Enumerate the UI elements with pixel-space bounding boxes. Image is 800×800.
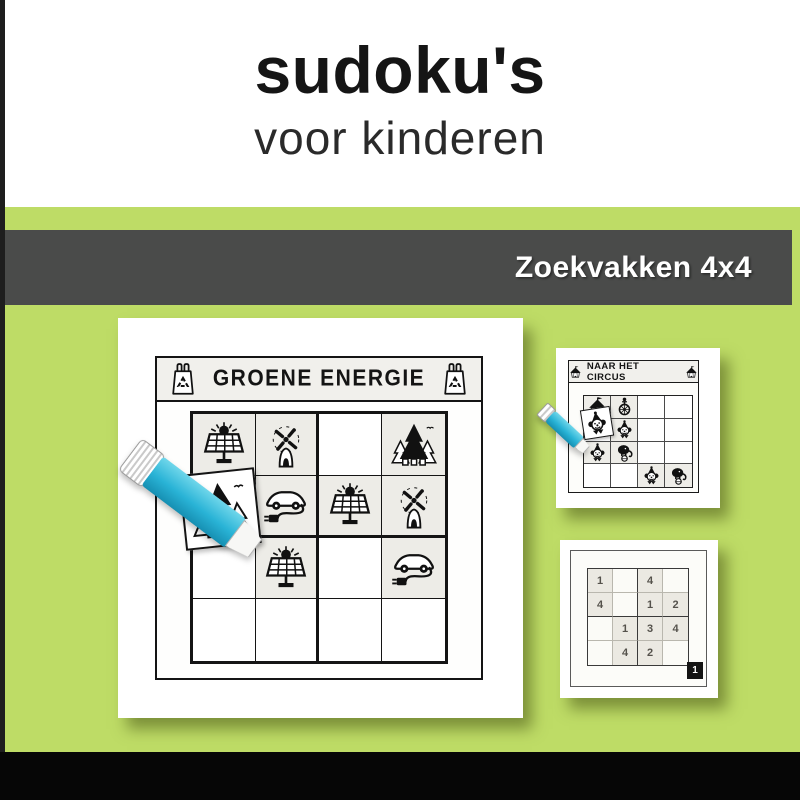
e-car-cell (256, 476, 319, 538)
empty-cell (382, 599, 445, 661)
banner-label: Zoekvakken 4x4 (515, 251, 752, 285)
empty-cell (638, 419, 665, 442)
solar-panel-icon (200, 420, 248, 468)
number-cell: 1 (588, 569, 613, 593)
elephant-cell (611, 442, 638, 465)
number-cell: 2 (638, 641, 663, 665)
empty-cell (665, 419, 692, 442)
empty-cell (613, 593, 638, 617)
empty-cell (193, 599, 256, 661)
main-puzzle-card: GROENE ENERGIE (118, 318, 523, 718)
circus-puzzle-header: NAAR HET CIRCUS (569, 361, 698, 383)
empty-cell (256, 599, 319, 661)
elephant-cell (665, 464, 692, 487)
category-banner: Zoekvakken 4x4 (0, 230, 792, 305)
page-title: sudoku's (254, 36, 545, 105)
empty-cell (665, 396, 692, 419)
trees-cell (382, 414, 445, 476)
page-subtitle: voor kinderen (254, 111, 546, 165)
clown-cell (611, 419, 638, 442)
windmill-cell (256, 414, 319, 476)
clown-cell (638, 464, 665, 487)
number-puzzle-card: 1441213442 1 (560, 540, 718, 698)
elephant-icon (669, 466, 688, 485)
empty-cell (663, 641, 688, 665)
empty-cell (319, 538, 382, 600)
e-car-icon (262, 481, 310, 529)
solar-panel-icon (326, 481, 374, 529)
footer-strip (0, 752, 800, 800)
number-cell: 3 (638, 617, 663, 641)
empty-cell (613, 569, 638, 593)
solar-panel-cell (193, 414, 256, 476)
page-number-badge: 1 (687, 662, 703, 679)
empty-cell (663, 569, 688, 593)
clown-puzzle-tile (580, 406, 614, 440)
e-car-cell (382, 538, 445, 600)
empty-cell (319, 599, 382, 661)
recycle-bag-icon (169, 361, 197, 397)
number-cell: 4 (613, 641, 638, 665)
solar-panel-cell (256, 538, 319, 600)
number-cell: 1 (613, 617, 638, 641)
empty-cell (665, 442, 692, 465)
empty-cell (638, 396, 665, 419)
number-cell: 2 (663, 593, 688, 617)
clown-icon (615, 420, 634, 439)
unicycle-cell (611, 396, 638, 419)
empty-cell (588, 641, 613, 665)
empty-cell (319, 414, 382, 476)
empty-cell (584, 464, 611, 487)
number-cell: 4 (663, 617, 688, 641)
number-sudoku-grid: 1441213442 (587, 568, 689, 666)
solar-panel-cell (319, 476, 382, 538)
windmill-icon (262, 420, 310, 468)
empty-cell (638, 442, 665, 465)
circus-tent-icon (685, 366, 698, 378)
solar-panel-icon (262, 544, 310, 592)
trees-icon (390, 420, 438, 468)
windmill-icon (390, 481, 438, 529)
clown-icon (583, 409, 610, 436)
main-puzzle-title: GROENE ENERGIE (213, 366, 425, 393)
circus-puzzle-card: NAAR HET CIRCUS (556, 348, 720, 508)
circus-tent-icon (569, 366, 582, 378)
number-cell: 4 (588, 593, 613, 617)
recycle-bag-icon (441, 361, 469, 397)
number-cell: 1 (638, 593, 663, 617)
empty-cell (611, 464, 638, 487)
circus-puzzle-title: NAAR HET CIRCUS (587, 361, 680, 383)
unicycle-icon (615, 397, 634, 416)
title-band: sudoku's voor kinderen (0, 0, 800, 207)
clown-icon (642, 466, 661, 485)
elephant-icon (615, 443, 634, 462)
windmill-cell (382, 476, 445, 538)
empty-cell (588, 617, 613, 641)
number-cell: 4 (638, 569, 663, 593)
e-car-icon (390, 544, 438, 592)
main-puzzle-header: GROENE ENERGIE (157, 358, 481, 402)
left-edge-strip (0, 0, 5, 752)
